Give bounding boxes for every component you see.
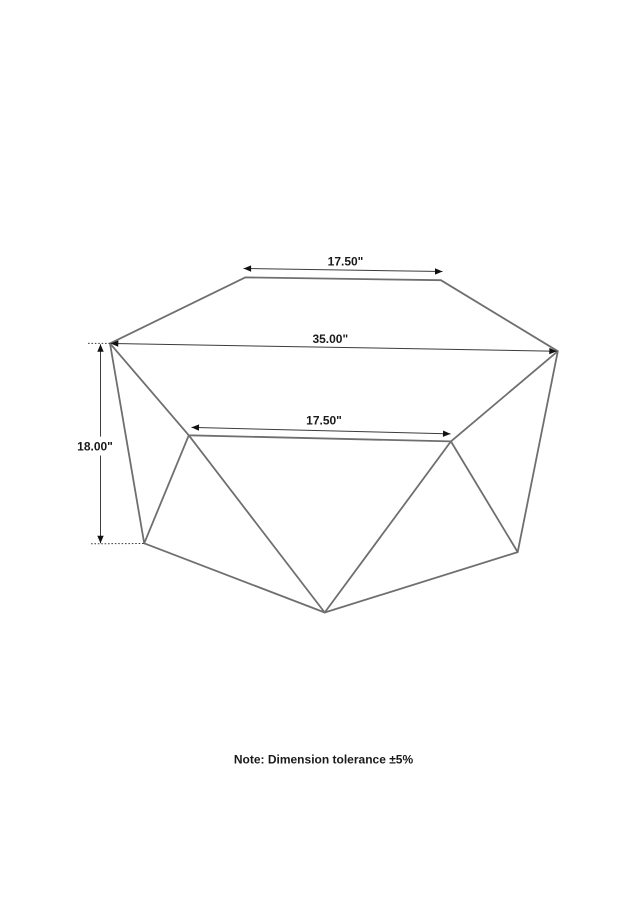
- svg-text:Note: Dimension tolerance ±5%: Note: Dimension tolerance ±5%: [234, 753, 414, 767]
- svg-text:17.50": 17.50": [306, 414, 342, 428]
- svg-text:17.50": 17.50": [328, 255, 364, 269]
- svg-text:18.00": 18.00": [77, 439, 113, 453]
- svg-text:35.00": 35.00": [312, 332, 348, 346]
